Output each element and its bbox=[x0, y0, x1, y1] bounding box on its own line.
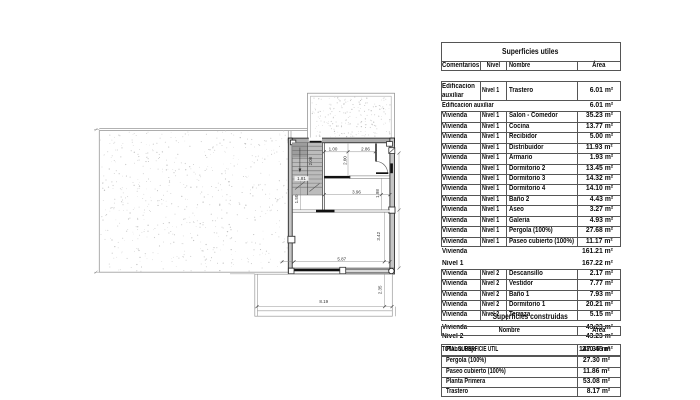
svg-text:1.81: 1.81 bbox=[297, 176, 306, 181]
svg-text:3.96: 3.96 bbox=[352, 189, 361, 194]
svg-text:3.42: 3.42 bbox=[376, 231, 381, 240]
svg-text:5.87: 5.87 bbox=[337, 256, 346, 261]
svg-text:2.86: 2.86 bbox=[361, 147, 370, 152]
svg-text:2.00: 2.00 bbox=[343, 156, 348, 165]
svg-text:8.19: 8.19 bbox=[319, 299, 328, 304]
svg-text:2.35: 2.35 bbox=[377, 285, 382, 294]
svg-text:2.06: 2.06 bbox=[308, 156, 313, 165]
svg-text:1.50: 1.50 bbox=[294, 194, 299, 203]
svg-text:1.98: 1.98 bbox=[375, 189, 380, 198]
svg-text:1.00: 1.00 bbox=[329, 147, 338, 152]
